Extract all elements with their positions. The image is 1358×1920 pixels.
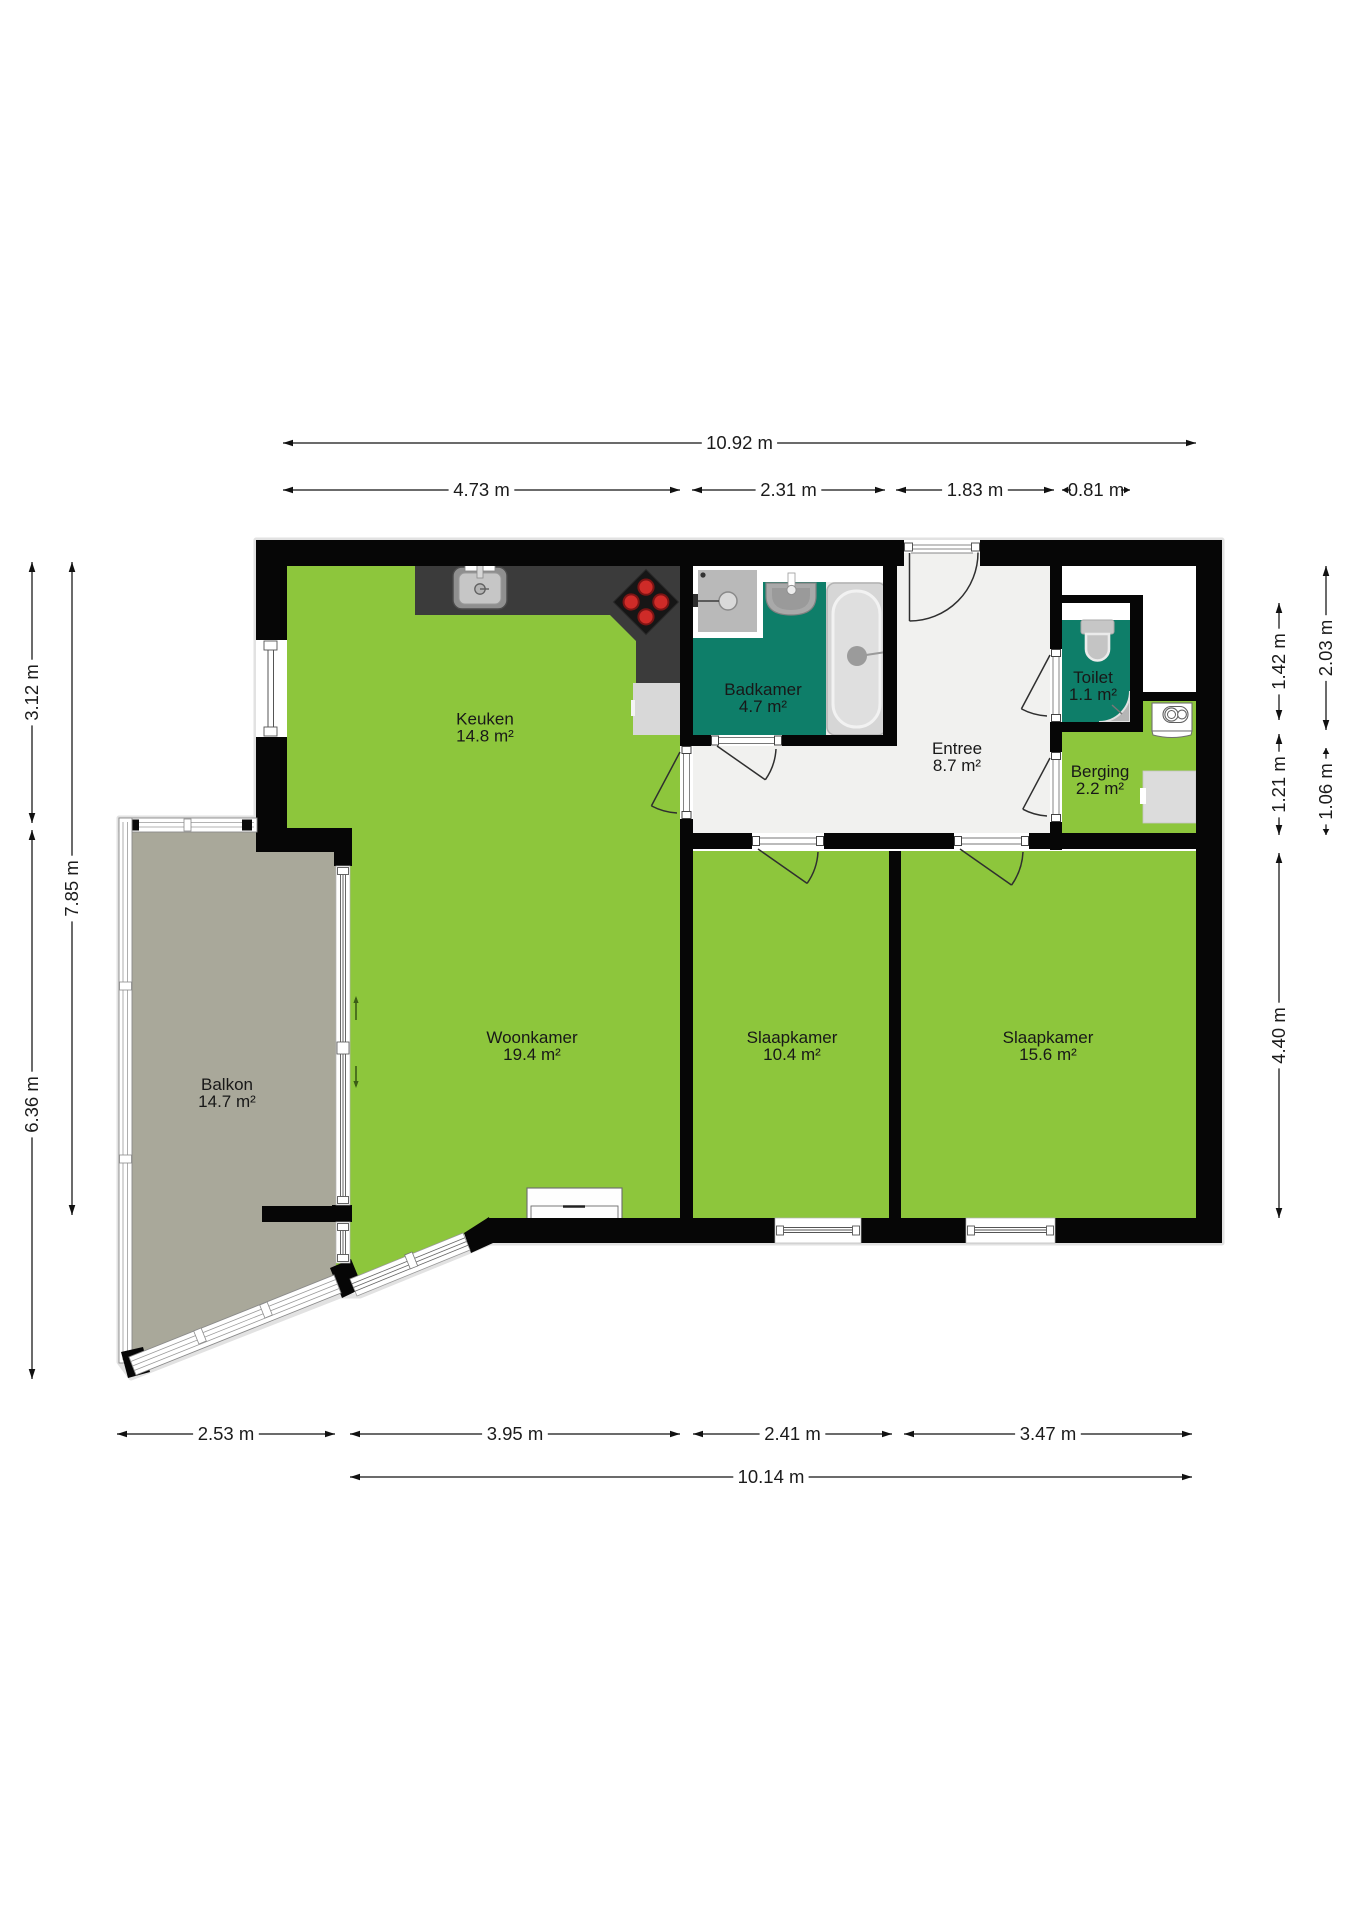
svg-text:2.03 m: 2.03 m [1315,620,1336,677]
svg-text:1.1 m²: 1.1 m² [1069,685,1118,704]
svg-text:2.31 m: 2.31 m [760,479,817,500]
svg-text:3.95 m: 3.95 m [487,1423,544,1444]
svg-text:15.6 m²: 15.6 m² [1019,1045,1077,1064]
svg-text:0.81 m: 0.81 m [1068,479,1125,500]
svg-text:6.36 m: 6.36 m [21,1076,42,1133]
svg-text:2.2 m²: 2.2 m² [1076,779,1125,798]
svg-text:1.06 m: 1.06 m [1315,763,1336,820]
svg-text:2.41 m: 2.41 m [764,1423,821,1444]
svg-text:3.47 m: 3.47 m [1020,1423,1077,1444]
svg-text:4.40 m: 4.40 m [1268,1007,1289,1064]
svg-text:19.4 m²: 19.4 m² [503,1045,561,1064]
svg-text:4.73 m: 4.73 m [453,479,510,500]
svg-text:7.85 m: 7.85 m [61,860,82,917]
svg-text:8.7 m²: 8.7 m² [933,756,982,775]
svg-text:10.92 m: 10.92 m [706,432,773,453]
svg-text:14.7 m²: 14.7 m² [198,1092,256,1111]
svg-text:14.8 m²: 14.8 m² [456,727,514,746]
svg-text:3.12 m: 3.12 m [21,664,42,721]
svg-text:2.53 m: 2.53 m [198,1423,255,1444]
svg-text:10.14 m: 10.14 m [738,1466,805,1487]
svg-text:1.21 m: 1.21 m [1268,756,1289,813]
svg-text:1.83 m: 1.83 m [947,479,1004,500]
svg-text:10.4 m²: 10.4 m² [763,1045,821,1064]
svg-text:4.7 m²: 4.7 m² [739,697,788,716]
svg-text:1.42 m: 1.42 m [1268,633,1289,690]
